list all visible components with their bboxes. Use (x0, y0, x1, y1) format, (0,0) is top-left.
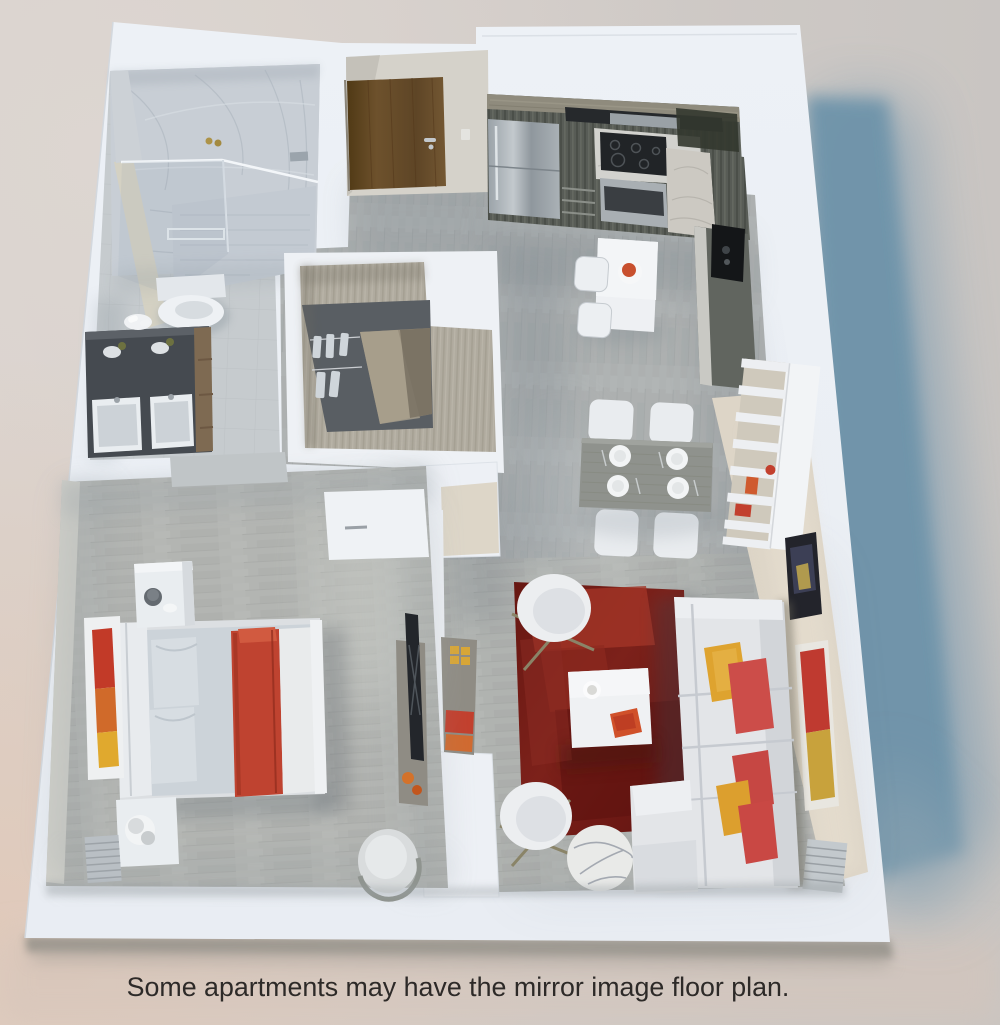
svg-text:Some apartments may have the m: Some apartments may have the mirror imag… (127, 972, 790, 1002)
